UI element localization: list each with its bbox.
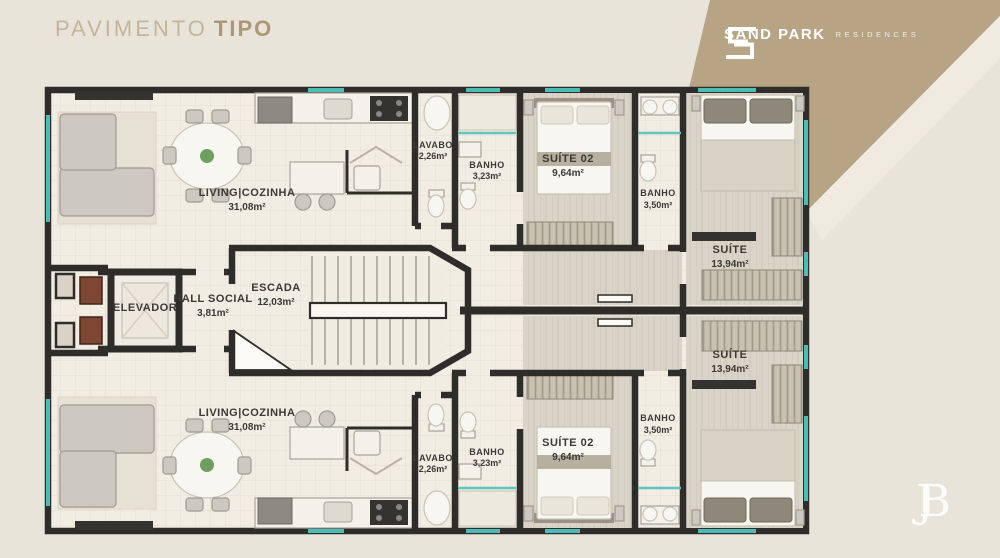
label-suite02-top-area: 9,64m² [552,168,584,179]
label-banho-large-bottom-area: 3,50m² [644,425,673,435]
utility-shaft [56,274,74,298]
label-elevador: ELEVADOR [113,302,177,314]
door-leaf [598,295,632,302]
label-lavabo-top-area: 2,26m² [419,151,448,161]
utility-shaft [56,323,74,347]
label-lavabo-bottom-area: 2,26m² [419,464,448,474]
entry-door [80,277,102,304]
basin [643,100,657,114]
wardrobe [702,270,802,300]
label-living-top: LIVING|COZINHA [199,187,296,199]
label-living-top-area: 31,08m² [228,202,266,213]
brand-descriptor: RESIDENCES [836,30,920,39]
fridge [258,97,292,123]
sandpark-logo-icon [724,26,758,60]
washbasin [424,96,450,130]
nightstand [692,96,700,111]
basin [663,100,677,114]
bath-sink [459,142,481,157]
label-suite-top-area: 13,94m² [711,259,749,270]
label-hall-area: 3,81m² [197,308,229,319]
bed-blanket [701,140,795,191]
label-banho-large-top: BANHO [640,188,676,198]
label-hall: HALL SOCIAL [173,293,252,305]
architect-monogram: JB [916,476,951,527]
stool [295,194,311,210]
stair-rail [310,303,446,318]
label-banho-small-bottom-area: 3,23m² [473,458,502,468]
label-banho-small-top: BANHO [469,160,505,170]
table-plant [200,149,214,163]
page-title: PAVIMENTOTIPO [55,16,273,42]
label-suite-top: SUÍTE [713,243,748,256]
nightstand [524,100,533,115]
label-lavabo-top: LAVABO [413,140,453,150]
label-suite02-bottom: SUÍTE 02 [542,436,594,449]
toilet [640,161,656,181]
monogram-b: B [919,476,951,527]
presentation-slide: LIVING|COZINHA 31,08m² LAVABO 2,26m² BAN… [0,0,1000,558]
label-banho-large-top-area: 3,50m² [644,200,673,210]
page-title-main: PAVIMENTO [55,16,208,41]
kitchen-sink [324,99,352,119]
label-escada-area: 12,03m² [257,297,295,308]
label-suite02-bottom-area: 9,64m² [552,452,584,463]
label-suite-bottom-area: 13,94m² [711,364,749,375]
label-living-bottom-area: 31,08m² [228,422,266,433]
nightstand [796,96,804,111]
sofa-chaise [60,114,116,170]
label-suite-bottom: SUÍTE [713,348,748,361]
floor-plan-svg: LIVING|COZINHA 31,08m² LAVABO 2,26m² BAN… [0,0,1000,558]
brand-logo: SAND PARKRESIDENCES [724,26,919,44]
entry-door [80,317,102,344]
label-living-bottom: LIVING|COZINHA [199,407,296,419]
toilet [460,189,476,209]
nightstand [615,100,624,115]
label-escada: ESCADA [251,282,300,294]
cooktop [370,96,408,121]
label-banho-large-bottom: BANHO [640,413,676,423]
tv-panel [75,91,153,100]
tv-rack [692,232,756,241]
page-title-accent: TIPO [214,16,273,41]
sofa [60,168,154,216]
laundry-tank [354,166,380,190]
label-banho-small-top-area: 3,23m² [473,171,502,181]
toilet [428,195,444,217]
wardrobe [772,198,802,256]
shower-tray [459,95,516,130]
kitchen-island [290,162,344,194]
label-lavabo-bottom: LAVABO [413,453,453,463]
label-suite02-top: SUÍTE 02 [542,152,594,165]
stool [319,194,335,210]
label-banho-small-bottom: BANHO [469,447,505,457]
